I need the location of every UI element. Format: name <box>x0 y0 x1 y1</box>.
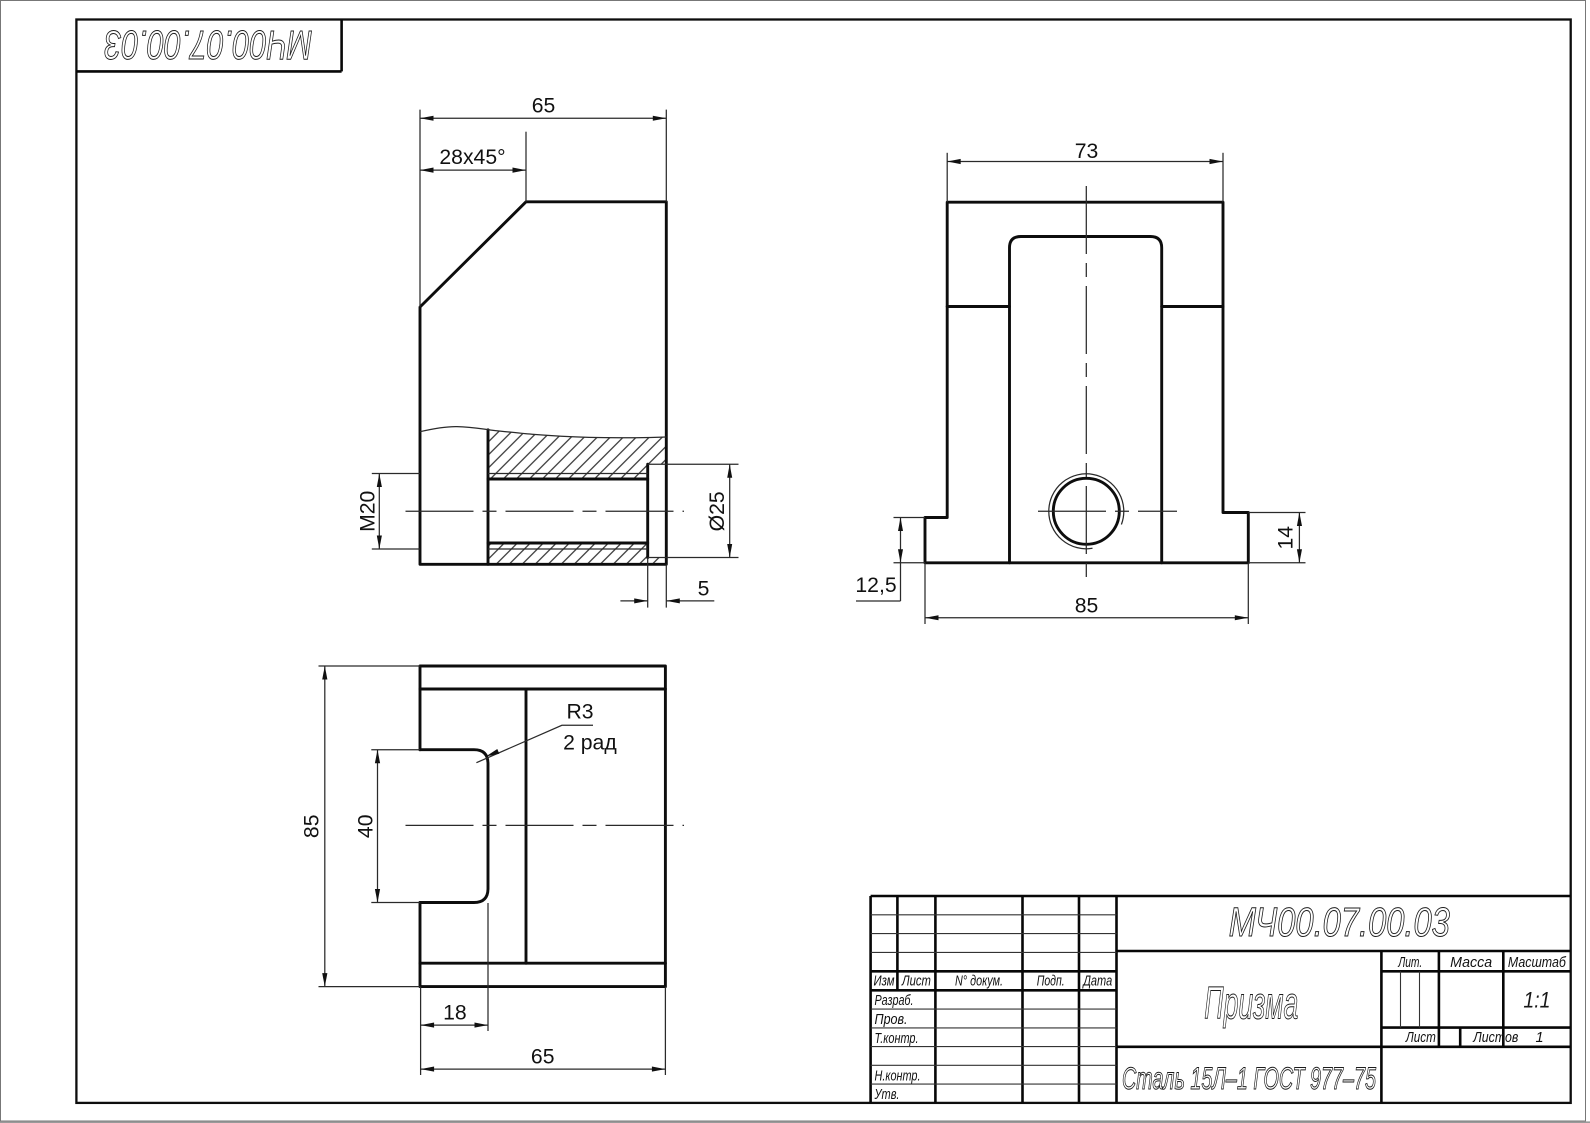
svg-text:Разраб.: Разраб. <box>875 993 914 1009</box>
svg-text:M20: M20 <box>356 491 379 532</box>
svg-text:Сталь 15Л–1 ГОСТ 977–75: Сталь 15Л–1 ГОСТ 977–75 <box>1122 1060 1376 1096</box>
svg-text:40: 40 <box>354 815 377 839</box>
svg-text:28x45°: 28x45° <box>439 146 505 169</box>
svg-text:Масса: Масса <box>1450 955 1492 971</box>
svg-text:18: 18 <box>443 1001 467 1024</box>
svg-text:N° докум.: N° докум. <box>955 974 1003 990</box>
svg-text:73: 73 <box>1075 140 1099 163</box>
svg-text:14: 14 <box>1275 526 1298 550</box>
svg-text:Листов: Листов <box>1472 1030 1518 1046</box>
svg-text:Н.контр.: Н.контр. <box>875 1068 921 1084</box>
svg-text:65: 65 <box>532 95 556 118</box>
svg-text:Лист: Лист <box>901 974 931 990</box>
svg-text:2 рад: 2 рад <box>563 731 617 754</box>
svg-text:Призма: Призма <box>1204 977 1298 1028</box>
svg-text:85: 85 <box>300 815 323 839</box>
svg-text:65: 65 <box>531 1045 555 1068</box>
svg-text:Дата: Дата <box>1082 974 1113 990</box>
svg-text:Изм: Изм <box>874 974 895 990</box>
svg-text:Масштаб: Масштаб <box>1508 955 1567 971</box>
svg-text:МЧ00.07.00.03: МЧ00.07.00.03 <box>104 22 312 68</box>
svg-text:Утв.: Утв. <box>874 1087 900 1103</box>
svg-text:1: 1 <box>1535 1030 1543 1046</box>
svg-text:Лист: Лист <box>1405 1030 1436 1046</box>
svg-text:85: 85 <box>1075 594 1099 617</box>
svg-text:12,5: 12,5 <box>855 574 896 597</box>
svg-text:5: 5 <box>698 577 710 600</box>
svg-text:Т.контр.: Т.контр. <box>875 1031 919 1047</box>
svg-text:Ø25: Ø25 <box>706 491 729 531</box>
svg-text:МЧ00.07.00.03: МЧ00.07.00.03 <box>1229 899 1450 945</box>
svg-text:Лит.: Лит. <box>1397 955 1422 971</box>
svg-text:Пров.: Пров. <box>875 1012 908 1028</box>
svg-text:R3: R3 <box>566 700 593 723</box>
svg-text:1:1: 1:1 <box>1523 987 1550 1012</box>
svg-text:Подп.: Подп. <box>1037 974 1065 990</box>
